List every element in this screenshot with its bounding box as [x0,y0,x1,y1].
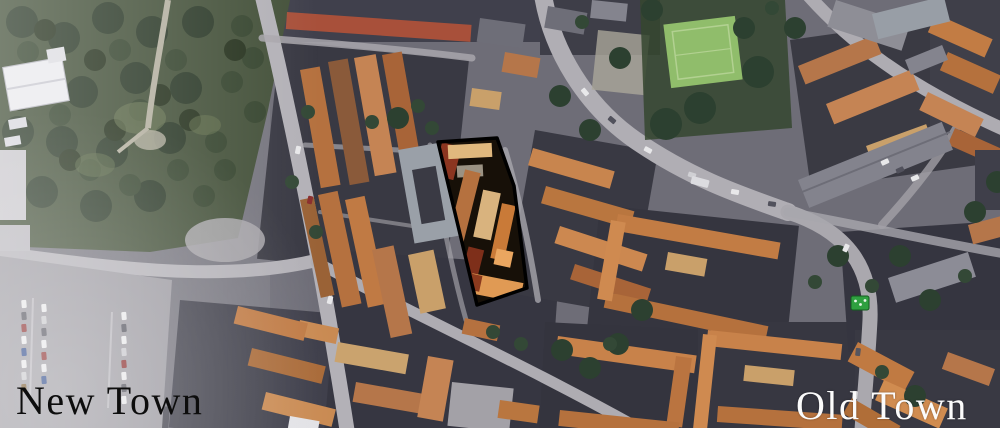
green-sign-marker [851,296,869,310]
haze-overlay [0,0,1000,428]
label-new-town: New Town [16,378,203,423]
label-old-town: Old Town [796,383,968,428]
aerial-map: New Town Old Town [0,0,1000,428]
